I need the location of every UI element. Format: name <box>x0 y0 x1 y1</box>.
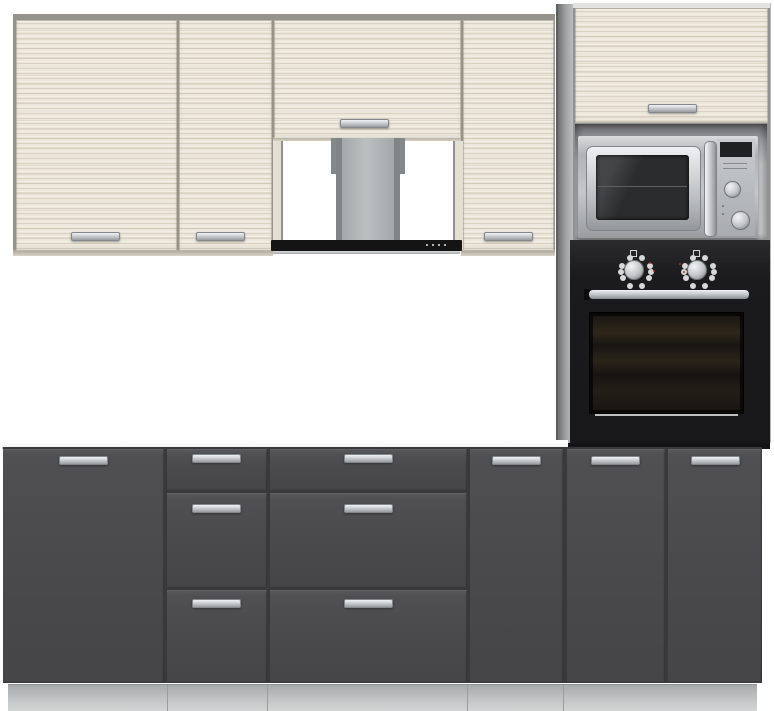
door-handle <box>484 232 533 241</box>
wall-door-left <box>16 20 177 251</box>
hood-button <box>438 244 440 246</box>
microwave-display <box>720 142 752 157</box>
microwave-handle <box>704 141 717 237</box>
oven-indicator-red <box>653 270 655 272</box>
base-door-under-oven-right <box>668 449 762 682</box>
drawer-handle <box>192 599 241 608</box>
door-handle <box>340 119 389 128</box>
microwave-button-row <box>723 168 747 169</box>
microwave-glass-shelf <box>598 186 687 187</box>
oven-door-glass <box>589 312 744 414</box>
oven-indicator-red <box>679 263 681 265</box>
base-door-under-oven-left <box>567 449 665 682</box>
oven-indicator-red <box>683 271 685 273</box>
microwave-indicator <box>722 213 724 215</box>
oven-knob-left <box>624 260 644 280</box>
door-handle <box>492 456 541 465</box>
plinth-seam <box>267 685 268 711</box>
microwave-window <box>596 155 689 220</box>
wall-door-mid <box>179 20 272 251</box>
hood-button <box>444 244 446 246</box>
plinth-seam <box>467 685 468 711</box>
hood-niche-side-left <box>273 141 283 250</box>
wall-door-right <box>463 20 554 251</box>
hood-base-trim <box>273 251 460 254</box>
oven-handle <box>589 290 749 299</box>
door-handle <box>591 456 640 465</box>
microwave-knob-upper <box>724 181 741 198</box>
door-handle <box>71 232 120 241</box>
door-handle <box>648 104 697 113</box>
kitchen-set-image <box>0 0 774 711</box>
microwave-button-row <box>723 163 747 164</box>
oven-door-trim-line <box>595 414 738 416</box>
plinth-seam <box>563 685 564 711</box>
door-handle <box>59 456 108 465</box>
hood-niche-side-right <box>453 141 463 250</box>
oven-function-icon <box>630 250 637 257</box>
microwave-indicator <box>722 205 724 207</box>
door-handle <box>196 232 245 241</box>
plinth-seam <box>167 685 168 711</box>
oven-indicator-red <box>649 262 651 264</box>
drawer-handle <box>344 454 393 463</box>
hood-button <box>426 244 428 246</box>
oven-function-icon <box>693 250 700 257</box>
drawer-handle <box>192 504 241 513</box>
drawer-handle <box>344 504 393 513</box>
base-door-wide <box>3 449 164 682</box>
oven <box>570 240 770 443</box>
microwave-knob-lower <box>731 211 750 230</box>
drawer-handle <box>192 454 241 463</box>
plinth <box>8 684 757 711</box>
microwave-control-panel <box>717 139 755 236</box>
drawer-handle <box>344 599 393 608</box>
hood-chimney-front <box>342 138 394 241</box>
hood-body <box>271 240 462 251</box>
door-handle <box>691 456 740 465</box>
hood-button <box>432 244 434 246</box>
base-door-mid <box>470 449 563 682</box>
oven-knob-right <box>687 260 707 280</box>
